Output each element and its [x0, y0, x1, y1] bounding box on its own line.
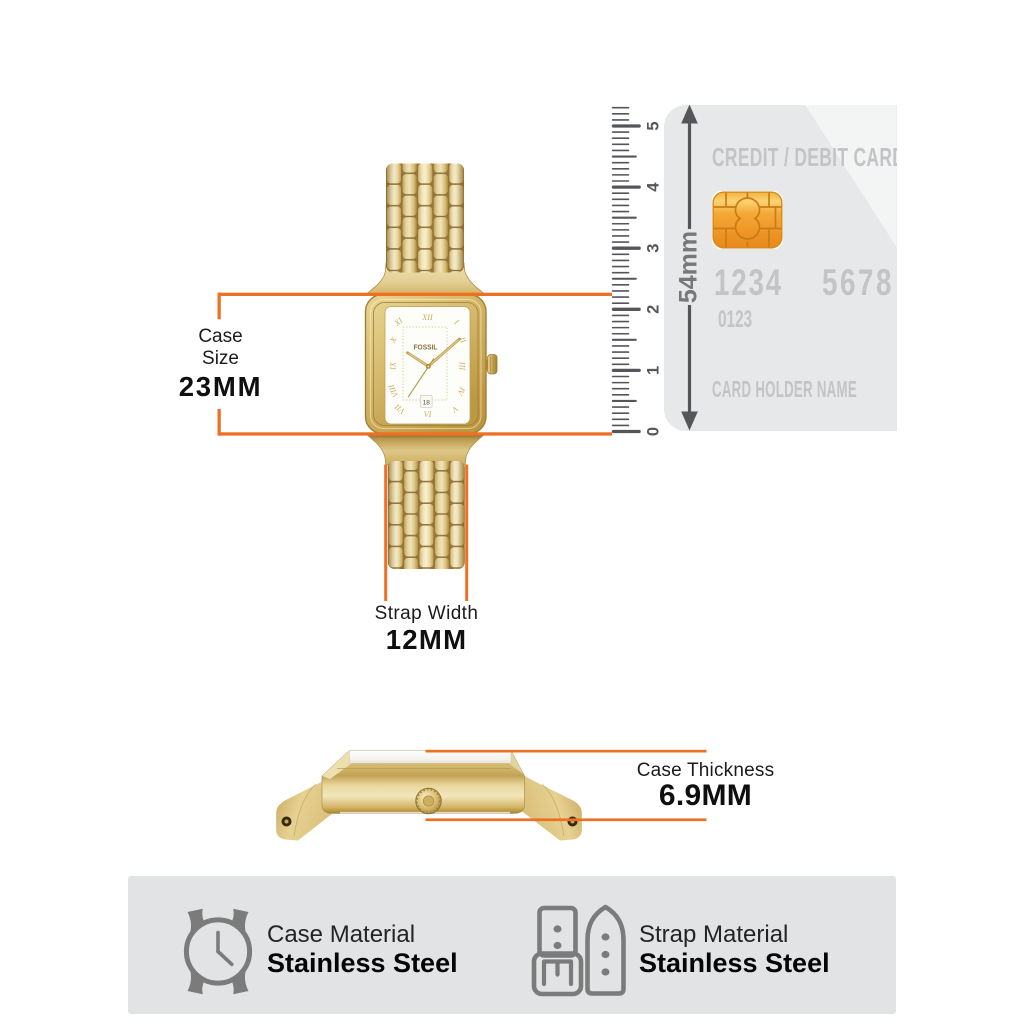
- svg-text:XII: XII: [421, 313, 434, 322]
- svg-text:4: 4: [645, 182, 663, 192]
- svg-text:3: 3: [645, 244, 663, 253]
- svg-text:18: 18: [423, 400, 431, 407]
- svg-text:5: 5: [645, 121, 663, 130]
- svg-text:1: 1: [645, 366, 663, 375]
- svg-text:54mm: 54mm: [675, 231, 703, 303]
- svg-text:VI: VI: [424, 410, 433, 419]
- svg-text:2: 2: [645, 305, 663, 314]
- svg-text:IX: IX: [389, 361, 398, 371]
- svg-text:III: III: [458, 361, 467, 371]
- svg-text:0: 0: [645, 427, 663, 436]
- svg-text:FOSSIL: FOSSIL: [414, 343, 438, 352]
